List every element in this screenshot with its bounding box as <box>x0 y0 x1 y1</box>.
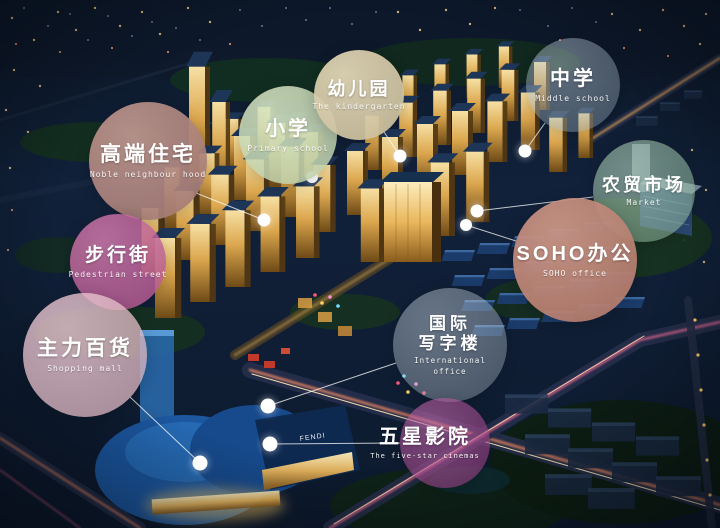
label-bubble-five-star-cinema: 五星影院 The five-star cinemas <box>400 398 490 488</box>
label-zh: 农贸市场 <box>602 175 686 196</box>
label-en: SOHO office <box>543 269 607 278</box>
label-bubble-middle-school: 中学 Middle school <box>526 38 620 132</box>
label-bubble-international-office: 国际 写字楼 International office <box>393 288 507 402</box>
label-zh: 步行街 <box>85 245 151 267</box>
label-zh: 中学 <box>550 68 596 91</box>
label-en: office <box>433 367 466 376</box>
label-en: The five-star cinemas <box>370 452 480 460</box>
label-zh: 高端住宅 <box>100 143 196 167</box>
label-bubble-soho-office: SOHO办公 SOHO office <box>513 198 637 322</box>
label-en: Pedestrian street <box>69 270 168 279</box>
label-zh: 幼儿园 <box>328 79 391 100</box>
label-en: Primary school <box>247 144 328 153</box>
label-en: Market <box>627 198 662 207</box>
label-zh: 五星影院 <box>379 426 471 449</box>
masterplan-rendering: FENDI <box>0 0 720 528</box>
label-en: Middle school <box>535 94 611 103</box>
label-zh: 小学 <box>265 118 311 141</box>
label-zh: 主力百货 <box>37 337 133 361</box>
label-en: The kindergarten <box>312 102 405 111</box>
label-en: Shopping mall <box>47 364 123 373</box>
label-en: Noble neighbour hood <box>90 170 206 179</box>
label-bubble-kindergarten: 幼儿园 The kindergarten <box>314 50 404 140</box>
label-zh: SOHO办公 <box>517 243 634 266</box>
label-en: International <box>414 356 486 365</box>
label-zh: 写字楼 <box>419 334 482 354</box>
label-zh: 国际 <box>429 314 471 334</box>
label-text-group: 五星影院 The five-star cinemas <box>370 426 480 460</box>
label-bubble-noble-neighbourhood: 高端住宅 Noble neighbour hood <box>89 102 207 220</box>
label-bubble-shopping-mall: 主力百货 Shopping mall <box>23 293 147 417</box>
